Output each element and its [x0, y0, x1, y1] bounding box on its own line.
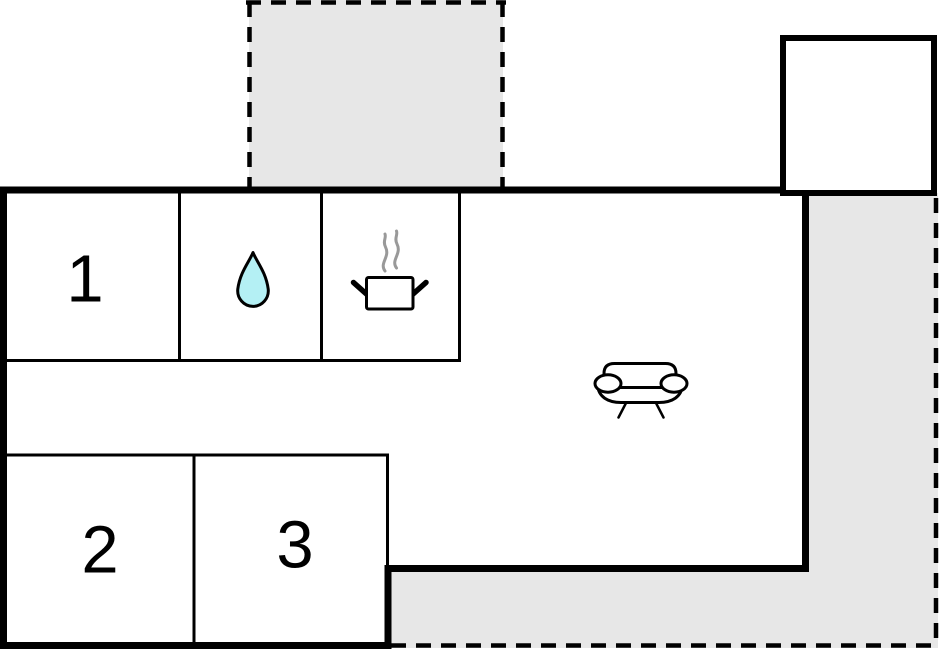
- sofa-armrest-left: [595, 375, 621, 392]
- balcony-room: [783, 38, 934, 193]
- terrace-right-bottom-fill: [390, 193, 938, 648]
- room-3-label: 3: [276, 512, 313, 579]
- terrace-top-fill: [249, 0, 503, 188]
- terrace-top: [246, 0, 506, 188]
- steam-icon: [395, 231, 399, 268]
- terrace-right-bottom: [390, 193, 940, 648]
- sofa-leg-right: [656, 403, 664, 418]
- floor-plan: 1 2 3: [0, 0, 940, 652]
- pot-handle-right: [413, 283, 427, 295]
- sofa-icon: [595, 364, 687, 418]
- floor-plan-drawing: [0, 0, 940, 652]
- pot-handle-left: [354, 283, 368, 295]
- water-drop-icon: [238, 253, 269, 307]
- pot-body: [367, 278, 414, 310]
- room-2-label: 2: [81, 517, 118, 584]
- steam-icon: [383, 234, 387, 271]
- room-1-label: 1: [66, 246, 103, 313]
- sofa-leg-left: [619, 403, 627, 418]
- cooking-pot-icon: [354, 231, 427, 309]
- sofa-armrest-right: [661, 375, 687, 392]
